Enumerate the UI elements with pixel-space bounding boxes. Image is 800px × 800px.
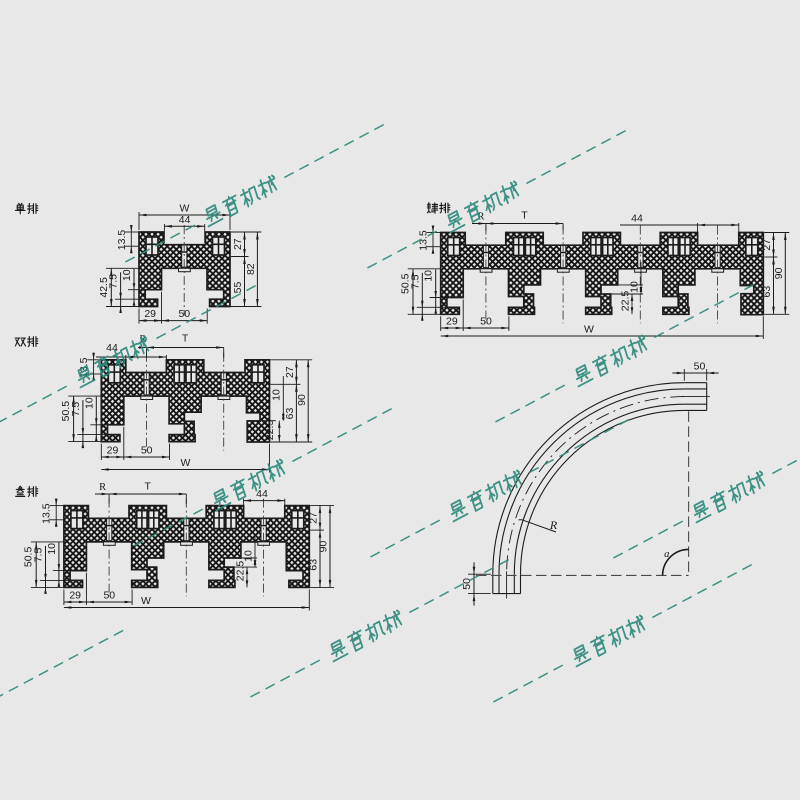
svg-text:13.5: 13.5 [116,230,128,251]
svg-text:63: 63 [308,559,320,571]
svg-text:50: 50 [141,445,153,457]
svg-text:63: 63 [284,408,296,420]
svg-text:50: 50 [694,361,706,373]
svg-text:27: 27 [761,239,773,251]
svg-text:27: 27 [232,238,244,250]
svg-text:10: 10 [46,543,58,555]
svg-text:29: 29 [69,590,81,602]
svg-text:90: 90 [773,267,785,279]
svg-text:29: 29 [144,308,156,320]
svg-text:7.5: 7.5 [70,402,82,417]
svg-text:T: T [182,333,189,345]
svg-text:22.5: 22.5 [235,561,247,582]
svg-text:a: a [664,549,669,560]
svg-text:50: 50 [103,590,115,602]
svg-text:44: 44 [631,213,643,225]
svg-text:10: 10 [271,389,283,401]
svg-text:W: W [180,203,190,215]
svg-text:R: R [99,482,106,493]
svg-text:50: 50 [480,316,492,328]
svg-text:82: 82 [245,263,257,275]
svg-text:44: 44 [179,214,191,226]
svg-text:W: W [141,595,151,607]
svg-text:7.5: 7.5 [409,274,421,289]
svg-text:10: 10 [121,269,133,281]
svg-text:50: 50 [178,308,190,320]
svg-text:R: R [549,518,558,532]
svg-text:T: T [521,210,528,222]
svg-text:27: 27 [284,366,296,378]
svg-text:10: 10 [243,550,255,562]
svg-text:7.5: 7.5 [108,274,120,289]
svg-text:W: W [584,324,594,336]
svg-text:10: 10 [423,270,435,282]
svg-text:29: 29 [446,316,458,328]
svg-text:22.5: 22.5 [264,420,276,441]
svg-text:13.5: 13.5 [41,503,53,524]
svg-text:90: 90 [318,541,330,553]
svg-text:44: 44 [256,488,268,500]
svg-text:55: 55 [232,282,244,294]
svg-text:90: 90 [296,394,308,406]
svg-text:29: 29 [107,445,119,457]
svg-text:W: W [180,457,190,469]
svg-text:10: 10 [83,397,95,409]
svg-text:27: 27 [308,512,320,524]
svg-text:63: 63 [761,286,773,298]
svg-text:T: T [144,481,151,493]
svg-text:7.5: 7.5 [33,547,45,562]
